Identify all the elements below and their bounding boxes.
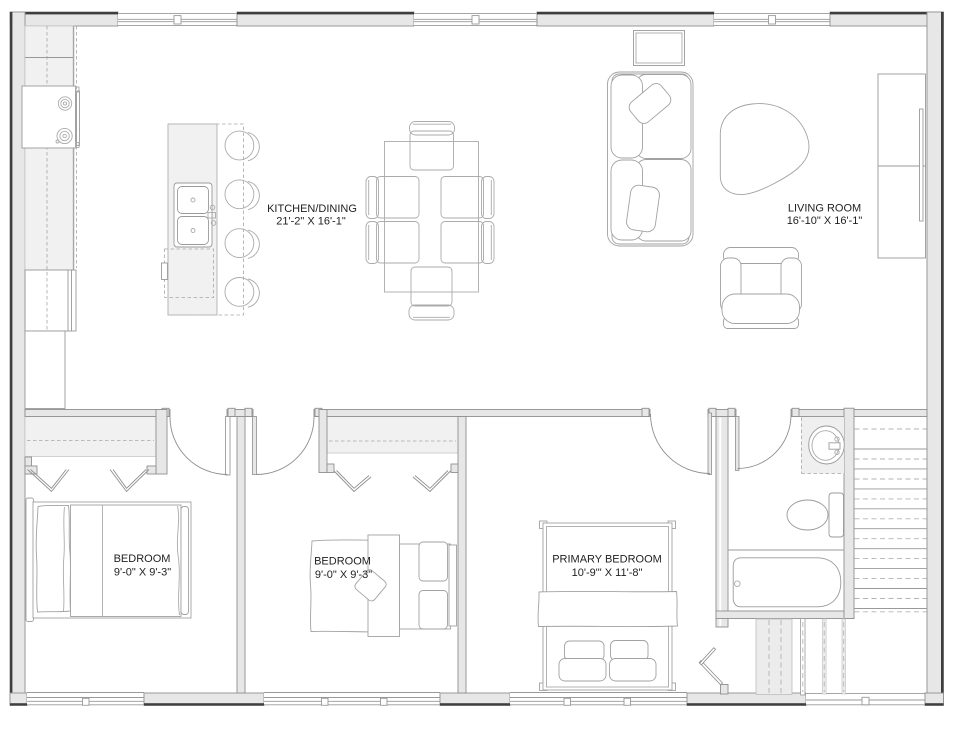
svg-text:10'-9"' X 11'-8": 10'-9"' X 11'-8" xyxy=(572,567,643,579)
svg-text:PRIMARY BEDROOM: PRIMARY BEDROOM xyxy=(552,554,662,566)
svg-text:16'-10" X 16'-1": 16'-10" X 16'-1" xyxy=(787,215,863,227)
svg-text:9'-0" X 9'-3": 9'-0" X 9'-3" xyxy=(315,569,372,581)
svg-text:9'-0" X 9'-3": 9'-0" X 9'-3" xyxy=(114,567,171,579)
svg-text:LIVING ROOM: LIVING ROOM xyxy=(788,203,861,215)
svg-text:BEDROOM: BEDROOM xyxy=(314,556,371,568)
svg-text:BEDROOM: BEDROOM xyxy=(114,553,171,565)
svg-text:21'-2" X 16'-1": 21'-2" X 16'-1" xyxy=(276,216,346,228)
svg-text:KITCHEN/DINING: KITCHEN/DINING xyxy=(267,203,357,215)
